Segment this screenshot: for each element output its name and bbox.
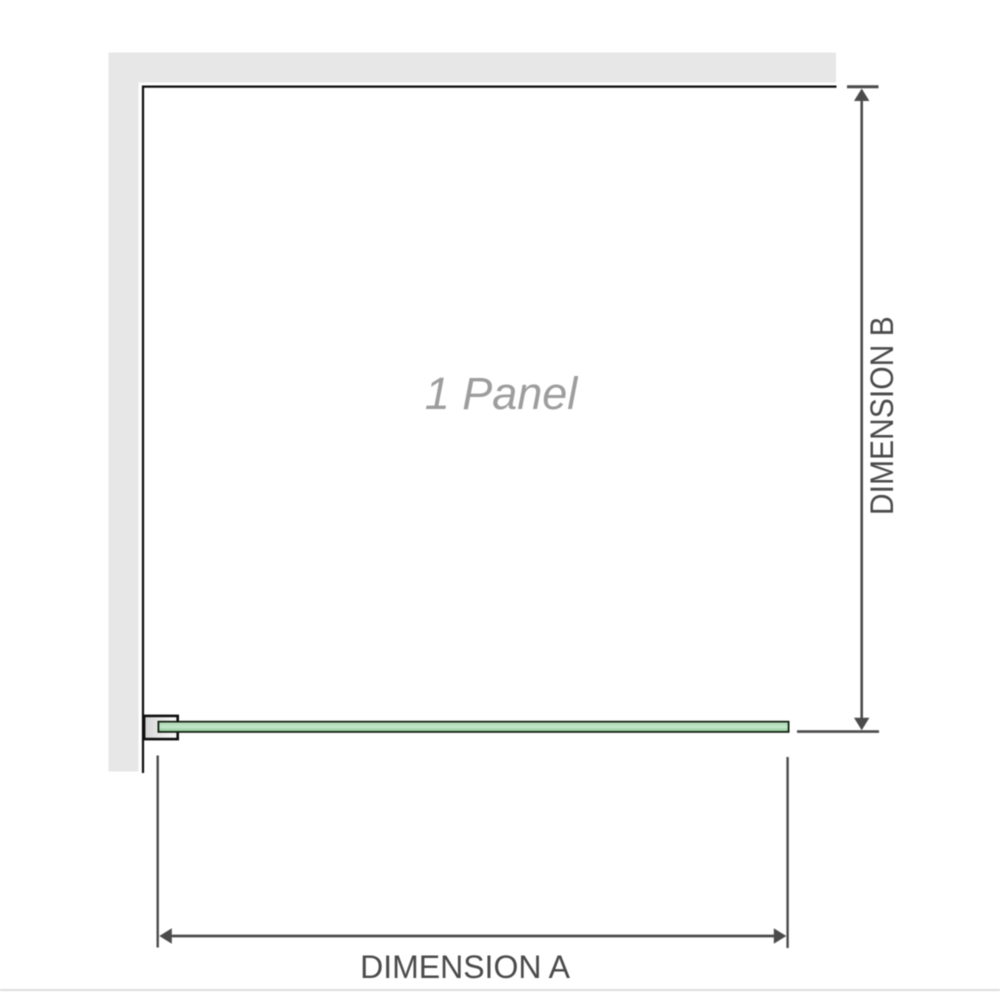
svg-text:DIMENSION B: DIMENSION B <box>864 316 900 515</box>
svg-text:DIMENSION A: DIMENSION A <box>360 949 570 985</box>
svg-text:1 Panel: 1 Panel <box>425 368 580 419</box>
